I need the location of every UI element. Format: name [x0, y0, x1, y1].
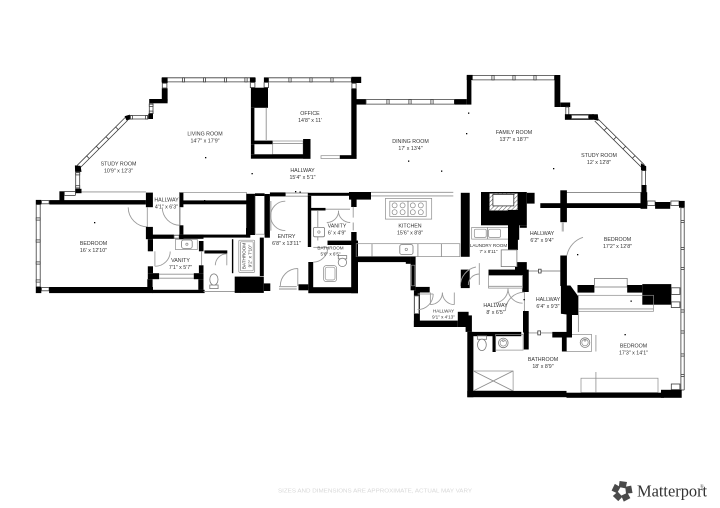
svg-text:17' x 13'4": 17' x 13'4" [398, 146, 422, 152]
svg-text:9'2" x 7'10": 9'2" x 7'10" [248, 244, 253, 267]
svg-text:10'9" x 12'3": 10'9" x 12'3" [104, 169, 133, 175]
svg-text:LAUNDRY ROOM: LAUNDRY ROOM [470, 243, 508, 248]
svg-text:15'6" x 8'8": 15'6" x 8'8" [397, 231, 423, 237]
svg-text:17'2" x 12'8": 17'2" x 12'8" [603, 244, 632, 250]
svg-text:SIZES AND DIMENSIONS ARE APPRO: SIZES AND DIMENSIONS ARE APPROXIMATE, AC… [278, 489, 473, 495]
svg-text:4'1" x 6'3": 4'1" x 6'3" [155, 205, 178, 211]
svg-text:BATHROOM: BATHROOM [528, 357, 558, 363]
svg-text:HALLWAY: HALLWAY [536, 297, 561, 303]
svg-text:7'1" x 5'7": 7'1" x 5'7" [169, 265, 192, 271]
svg-text:KITCHEN: KITCHEN [398, 224, 421, 230]
svg-text:STUDY ROOM: STUDY ROOM [101, 162, 137, 168]
svg-text:13'7" x 18'7": 13'7" x 18'7" [499, 137, 528, 143]
svg-text:17'3" x 14'1": 17'3" x 14'1" [619, 351, 648, 357]
svg-text:6'4" x 9'3": 6'4" x 9'3" [536, 304, 559, 310]
svg-text:6'8" x 13'11": 6'8" x 13'11" [272, 241, 301, 247]
svg-text:BATHROOM: BATHROOM [242, 243, 247, 269]
svg-text:ENTRY: ENTRY [278, 234, 296, 240]
svg-text:HALLWAY: HALLWAY [530, 231, 555, 237]
svg-text:9'1" x 4'13": 9'1" x 4'13" [432, 315, 455, 320]
svg-text:FAMILY ROOM: FAMILY ROOM [496, 130, 532, 136]
svg-text:BATHROOM: BATHROOM [317, 246, 343, 251]
svg-text:15'4" x 5'1": 15'4" x 5'1" [289, 175, 315, 181]
svg-text:HALLWAY: HALLWAY [433, 309, 454, 314]
svg-text:OFFICE: OFFICE [300, 111, 320, 117]
svg-text:STUDY ROOM: STUDY ROOM [581, 153, 617, 159]
svg-text:14'8" x 11': 14'8" x 11' [298, 118, 322, 124]
svg-text:7' x 8'11": 7' x 8'11" [479, 249, 497, 254]
svg-text:VANITY: VANITY [328, 224, 347, 230]
svg-text:BEDROOM: BEDROOM [80, 241, 107, 247]
svg-text:14'7" x 17'9": 14'7" x 17'9" [190, 139, 219, 145]
svg-text:12' x 12'8": 12' x 12'8" [587, 160, 611, 166]
svg-text:HALLWAY: HALLWAY [483, 303, 508, 309]
svg-text:6' x 4'9": 6' x 4'9" [328, 231, 346, 237]
svg-text:HALLWAY: HALLWAY [290, 168, 315, 174]
svg-text:BEDROOM: BEDROOM [604, 237, 631, 243]
svg-text:6'2" x 9'4": 6'2" x 9'4" [530, 238, 553, 244]
svg-text:16' x 12'10": 16' x 12'10" [80, 248, 107, 254]
svg-text:8' x 6'5": 8' x 6'5" [486, 310, 504, 316]
svg-text:®: ® [700, 484, 704, 490]
svg-text:5'6" x 6'5": 5'6" x 6'5" [320, 252, 340, 257]
svg-text:BEDROOM: BEDROOM [620, 344, 647, 350]
svg-text:Matterport: Matterport [637, 482, 708, 501]
svg-text:18' x 8'9": 18' x 8'9" [532, 364, 553, 370]
svg-text:LIVING ROOM: LIVING ROOM [187, 132, 222, 138]
svg-text:VANITY: VANITY [171, 258, 190, 264]
svg-text:DINING ROOM: DINING ROOM [392, 139, 429, 145]
svg-text:HALLWAY: HALLWAY [154, 198, 179, 204]
